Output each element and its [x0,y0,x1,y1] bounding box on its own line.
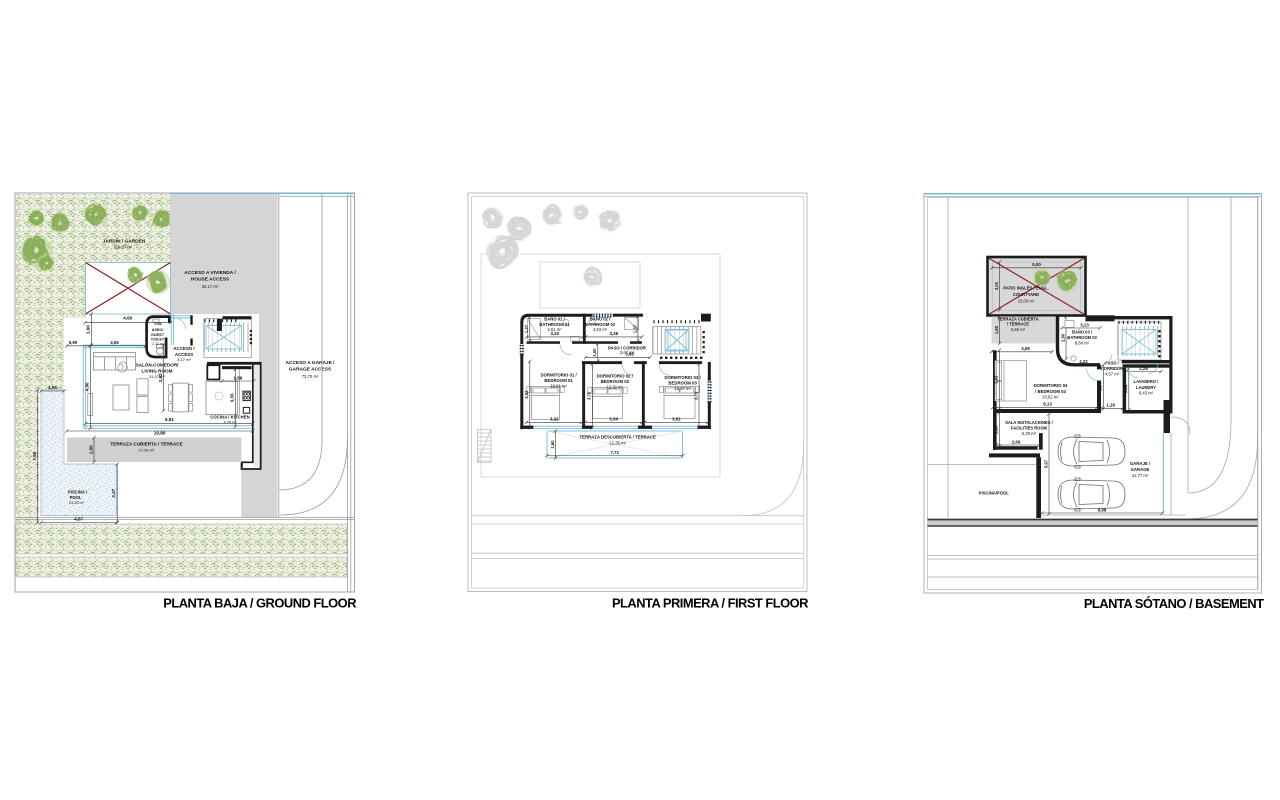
svg-text:3,34: 3,34 [609,417,618,422]
svg-text:COCINA / KITCHEN: COCINA / KITCHEN [210,414,249,419]
svg-text:BEDROOM 02: BEDROOM 02 [601,379,630,384]
svg-text:7,71: 7,71 [611,450,620,455]
svg-text:2,82: 2,82 [1123,384,1128,393]
svg-text:3,62: 3,62 [672,417,681,422]
svg-text:3,32: 3,32 [550,417,559,422]
svg-text:ASEO/: ASEO/ [152,328,165,332]
svg-text:LIVING ROOM: LIVING ROOM [142,369,173,374]
svg-text:BATHROOM 03: BATHROOM 03 [1067,335,1097,340]
svg-text:ACCESO A GARAJE /: ACCESO A GARAJE / [286,360,336,366]
svg-text:PISCINA /: PISCINA / [68,489,88,494]
svg-text:10,86: 10,86 [154,431,166,436]
svg-text:4,86: 4,86 [85,382,90,391]
svg-text:9,81: 9,81 [165,417,174,422]
svg-text:73,70 m²: 73,70 m² [302,374,319,379]
svg-text:1,37: 1,37 [524,324,529,333]
svg-text:0,90: 0,90 [69,340,78,345]
svg-text:DORMITORIO 03 /: DORMITORIO 03 / [664,375,701,380]
svg-text:12,36 m²: 12,36 m² [609,441,626,446]
svg-text:2,00: 2,00 [994,425,999,434]
svg-text:4,67: 4,67 [74,516,83,521]
svg-text:4,57 m²: 4,57 m² [1105,372,1120,377]
svg-text:ACCESO A VIVIENDA /: ACCESO A VIVIENDA / [184,270,236,276]
svg-text:3,82: 3,82 [158,373,163,382]
svg-text:BAÑO 03 /: BAÑO 03 / [1072,330,1093,335]
svg-text:5,00: 5,00 [1032,262,1041,267]
svg-text:3,92: 3,92 [994,375,999,384]
svg-text:2,12 m²: 2,12 m² [152,342,164,346]
svg-text:4,60: 4,60 [123,316,132,321]
svg-text:119,87 m²: 119,87 m² [114,245,133,250]
svg-text:1,60: 1,60 [994,325,999,334]
svg-text:FACILITIES ROOM: FACILITIES ROOM [1011,426,1048,431]
svg-text:3,38: 3,38 [610,331,619,336]
svg-text:3,32: 3,32 [551,331,560,336]
svg-text:3,00: 3,00 [994,281,999,290]
svg-text:DORMITORIO 01 /: DORMITORIO 01 / [540,373,577,378]
svg-text:1,18: 1,18 [1106,403,1115,408]
svg-text:2,28: 2,28 [1139,366,1148,371]
svg-text:SALA INSTALACIONES /: SALA INSTALACIONES / [1005,420,1053,425]
svg-text:TERRAZA DESCUBIERTA / TERRACE: TERRAZA DESCUBIERTA / TERRACE [579,435,656,440]
svg-text:1,60: 1,60 [86,325,91,334]
svg-text:16,91 m²: 16,91 m² [550,384,567,389]
svg-text:COURTYARD: COURTYARD [1013,292,1039,297]
svg-text:3,70: 3,70 [587,391,592,400]
svg-text:6,13: 6,13 [1043,402,1052,407]
svg-text:34,17 m²: 34,17 m² [202,284,219,289]
svg-text:DORMITORIO 04: DORMITORIO 04 [1034,383,1068,388]
svg-text:1,86: 1,86 [233,375,242,380]
svg-text:3,47: 3,47 [111,488,116,497]
svg-text:41,77 m²: 41,77 m² [1132,473,1149,478]
svg-text:6,60 m²: 6,60 m² [1075,341,1090,346]
svg-text:CORRIDOR: CORRIDOR [1101,366,1123,371]
svg-text:GARAGE ACCESS: GARAGE ACCESS [289,367,332,373]
svg-text:LAUNDRY: LAUNDRY [1136,385,1156,390]
svg-text:6,55 m²: 6,55 m² [1011,327,1026,332]
svg-text:PLANTA PRIMERA / FIRST FLOOR: PLANTA PRIMERA / FIRST FLOOR [612,595,809,610]
svg-text:23,25 m²: 23,25 m² [69,501,85,505]
svg-text:GARAGE: GARAGE [1131,467,1150,472]
svg-text:2,50: 2,50 [1060,333,1065,342]
svg-text:/ TERRACE: / TERRACE [1007,322,1029,327]
svg-text:GUEST: GUEST [151,333,165,337]
svg-text:13,37 m²: 13,37 m² [674,386,691,391]
svg-text:/ BEDROOM 04: / BEDROOM 04 [1035,389,1066,394]
svg-text:2,66: 2,66 [1012,439,1021,444]
svg-text:5,97: 5,97 [1043,459,1048,468]
svg-text:4,52: 4,52 [524,390,529,399]
svg-text:ACCESO /: ACCESO / [173,346,195,351]
svg-text:DORMITORIO 02 /: DORMITORIO 02 / [597,374,634,379]
svg-text:27,08 m²: 27,08 m² [139,448,155,453]
svg-text:POOL: POOL [70,495,82,500]
svg-text:BEDROOM 01: BEDROOM 01 [544,378,573,383]
svg-text:TERRAZA CUBIERTA / TERRACE: TERRAZA CUBIERTA / TERRACE [110,442,182,447]
svg-text:20,62 m²: 20,62 m² [1042,395,1059,400]
svg-text:PLANTA BAJA / GROUND FLOOR: PLANTA BAJA / GROUND FLOOR [163,595,357,610]
svg-text:1,60: 1,60 [550,440,555,449]
svg-text:PATIO INGLÉS / ENGL.: PATIO INGLÉS / ENGL. [1003,286,1048,291]
svg-text:3,35: 3,35 [230,393,235,402]
svg-text:6,43 m²: 6,43 m² [1139,391,1154,396]
svg-text:6,98: 6,98 [1098,507,1107,512]
svg-text:3,55: 3,55 [1021,346,1030,351]
svg-text:PISCINA/POOL: PISCINA/POOL [979,491,1009,496]
svg-text:1,00: 1,00 [592,348,597,357]
svg-text:LAVADERO /: LAVADERO / [1134,379,1160,384]
svg-text:GARAJE /: GARAJE / [1130,461,1151,466]
svg-text:7,95: 7,95 [32,451,37,460]
svg-text:HOUSE ACCESS: HOUSE ACCESS [191,277,230,283]
svg-text:SALÓN-COMEDOR/: SALÓN-COMEDOR/ [136,361,180,368]
svg-text:1,56: 1,56 [48,385,57,390]
svg-text:3,13: 3,13 [1080,322,1089,327]
svg-text:12,32 m²: 12,32 m² [607,385,624,390]
svg-text:TERRAZA CUBIERTA: TERRAZA CUBIERTA [997,316,1038,321]
svg-text:1,90: 1,90 [88,445,93,454]
svg-text:4,63 m²: 4,63 m² [593,327,608,332]
svg-text:BEDROOM 03: BEDROOM 03 [668,381,697,386]
svg-text:PLANTA SÓTANO / BASEMENT: PLANTA SÓTANO / BASEMENT [1084,596,1264,611]
svg-text:2,23: 2,23 [1079,359,1088,364]
svg-text:4,17 m²: 4,17 m² [177,357,191,362]
svg-text:3,70: 3,70 [693,391,698,400]
svg-text:15,00 m²: 15,00 m² [1018,299,1035,304]
svg-text:5,30 m²: 5,30 m² [1022,431,1037,436]
svg-text:1,37: 1,37 [632,324,637,333]
svg-text:3,68: 3,68 [625,352,634,357]
svg-text:3,55: 3,55 [110,340,119,345]
